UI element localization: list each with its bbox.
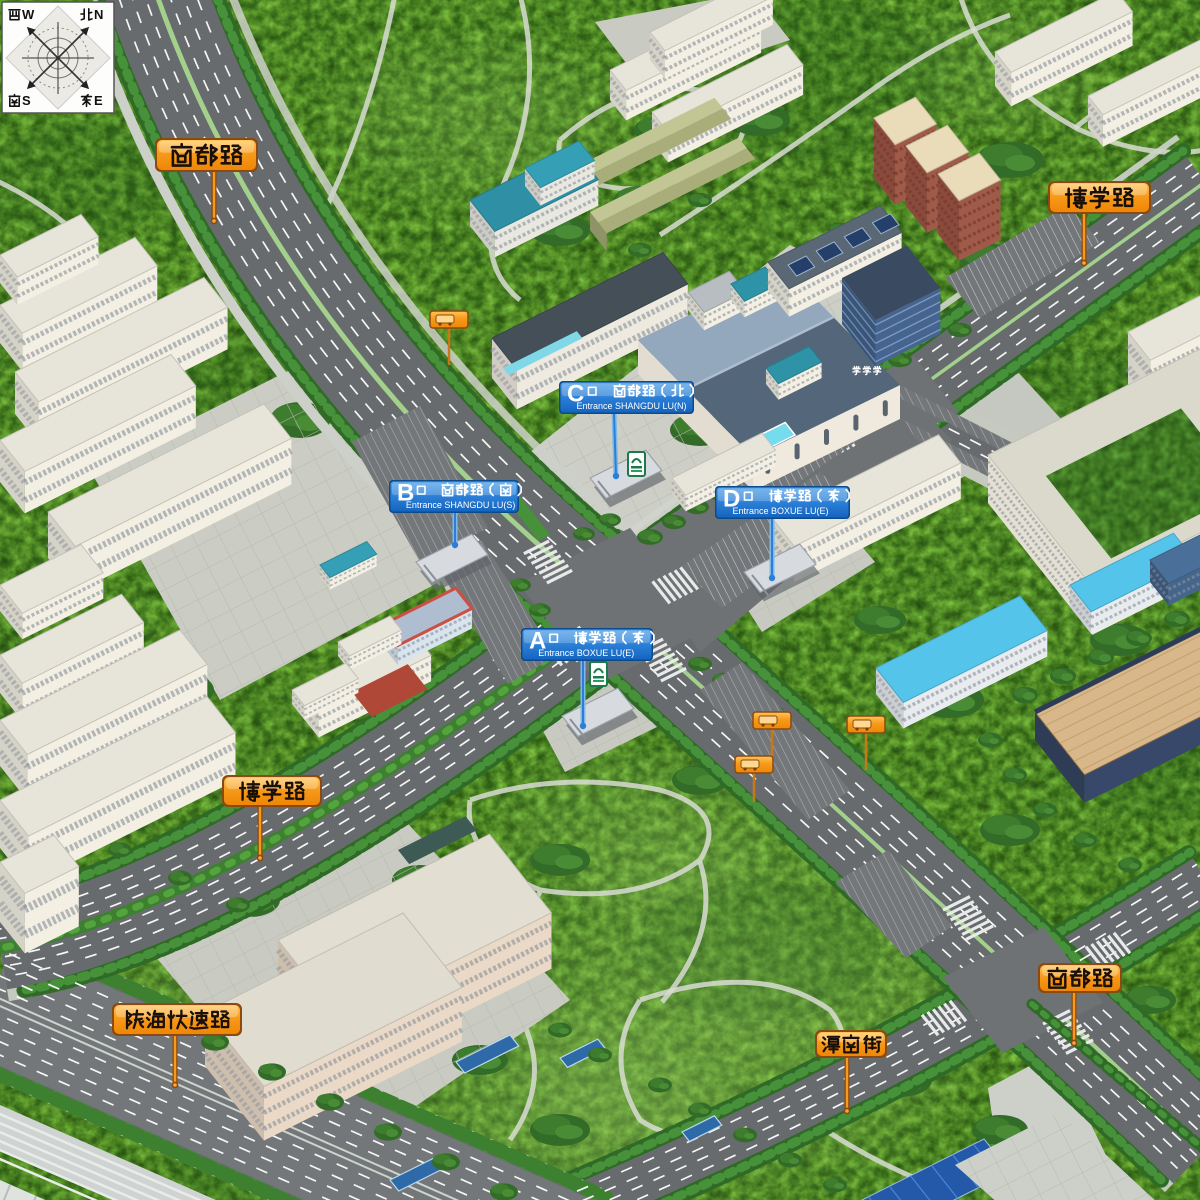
svg-text:W: W bbox=[22, 7, 35, 22]
svg-text:Entrance SHANGDU LU(N): Entrance SHANGDU LU(N) bbox=[577, 401, 687, 411]
svg-text:S: S bbox=[22, 93, 31, 108]
svg-text:Entrance SHANGDU LU(S): Entrance SHANGDU LU(S) bbox=[406, 500, 516, 510]
svg-text:Entrance BOXUE LU(E): Entrance BOXUE LU(E) bbox=[733, 506, 829, 516]
svg-text:N: N bbox=[94, 7, 103, 22]
svg-text:Entrance BOXUE LU(E): Entrance BOXUE LU(E) bbox=[538, 648, 634, 658]
svg-text:E: E bbox=[94, 93, 103, 108]
